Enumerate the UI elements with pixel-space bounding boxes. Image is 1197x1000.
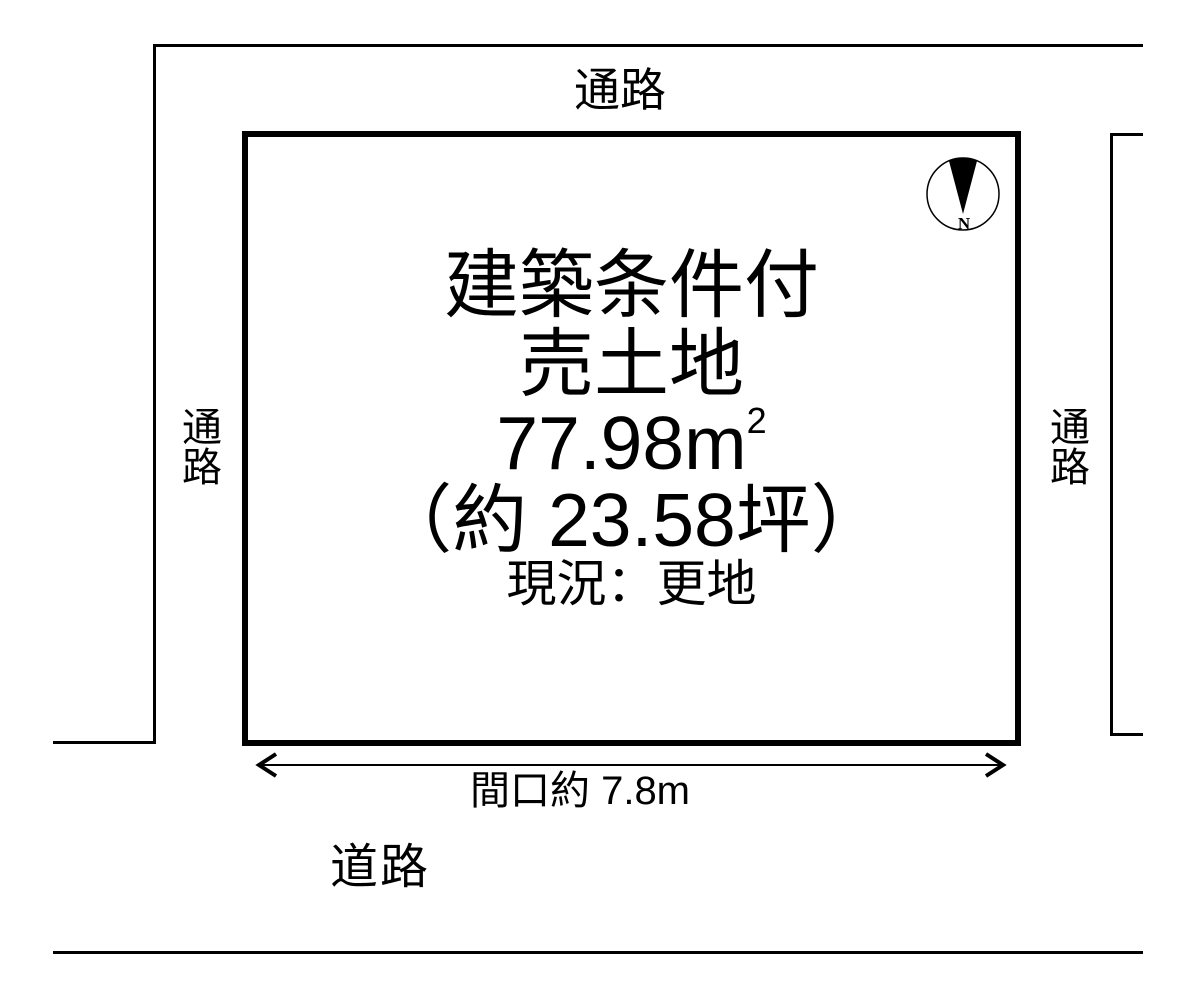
passage-label-right: 通路	[1044, 406, 1088, 486]
plot-area-sqm: 77.98m2	[242, 404, 1021, 483]
land-plot-diagram: 通路 通路 通路 道路 間口約 7.8m 建築条件付 売土地 77.98m2 （…	[0, 0, 1197, 1000]
passage-left-boundary-line	[153, 44, 156, 744]
passage-right-top-tick	[1110, 133, 1143, 136]
plot-title-line2: 売土地	[242, 325, 1021, 404]
plot-title-line1: 建築条件付	[242, 246, 1021, 325]
passage-right-bottom-tick	[1110, 733, 1143, 736]
plot-area-unit: m	[684, 401, 746, 485]
plot-info-text: 建築条件付 売土地 77.98m2 （約 23.58坪） 現況：更地	[242, 246, 1021, 611]
passage-label-left: 通路	[176, 406, 220, 486]
road-boundary-line	[53, 951, 1143, 954]
passage-left-bottom-corner-line	[53, 741, 156, 744]
passage-right-boundary-line	[1110, 133, 1113, 736]
compass-icon: N	[924, 155, 1004, 235]
plot-area-value: 77.98	[496, 401, 684, 485]
plot-current-status: 現況：更地	[242, 557, 1021, 611]
plot-area-exponent: 2	[747, 400, 767, 441]
plot-area-tsubo: （約 23.58坪）	[242, 483, 1021, 557]
passage-label-top: 通路	[520, 66, 720, 114]
compass-north-label: N	[958, 214, 971, 233]
passage-top-boundary-line	[153, 44, 1143, 47]
frontage-dimension-arrow	[250, 750, 1010, 780]
road-label: 道路	[330, 842, 430, 894]
